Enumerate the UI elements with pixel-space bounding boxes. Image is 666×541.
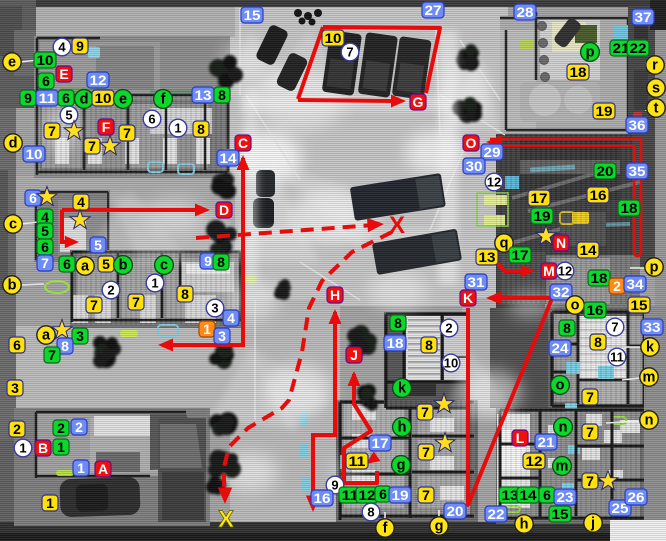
svg-text:9: 9 [204, 253, 212, 269]
svg-text:m: m [556, 459, 569, 475]
svg-text:q: q [500, 236, 509, 252]
svg-text:7: 7 [611, 320, 618, 335]
svg-text:X: X [389, 212, 405, 239]
svg-text:18: 18 [591, 270, 608, 286]
svg-text:O: O [466, 135, 477, 151]
svg-text:s: s [652, 81, 660, 97]
svg-text:2: 2 [107, 283, 114, 298]
svg-text:14: 14 [220, 150, 237, 166]
svg-text:e: e [8, 55, 16, 71]
svg-text:6: 6 [62, 90, 70, 106]
svg-text:h: h [520, 517, 529, 533]
svg-text:6: 6 [543, 487, 551, 503]
svg-text:8: 8 [594, 334, 602, 350]
svg-text:20: 20 [447, 503, 464, 519]
svg-text:14: 14 [520, 487, 537, 503]
svg-text:r: r [652, 58, 658, 74]
svg-text:o: o [571, 298, 580, 314]
svg-text:10: 10 [444, 356, 458, 371]
svg-text:t: t [654, 101, 659, 117]
svg-text:6: 6 [41, 239, 49, 255]
svg-text:17: 17 [372, 435, 389, 451]
svg-text:d: d [9, 136, 18, 152]
svg-text:10: 10 [37, 52, 54, 68]
svg-text:32: 32 [553, 284, 570, 300]
svg-text:33: 33 [644, 319, 661, 335]
svg-text:3: 3 [76, 328, 84, 344]
svg-text:7: 7 [132, 294, 140, 310]
svg-text:17: 17 [512, 247, 529, 263]
svg-text:8: 8 [563, 320, 571, 336]
svg-text:7: 7 [422, 444, 430, 460]
svg-text:15: 15 [631, 297, 648, 313]
svg-text:16: 16 [587, 302, 604, 318]
svg-text:12: 12 [558, 264, 572, 279]
svg-text:12: 12 [526, 453, 543, 469]
svg-text:9: 9 [24, 90, 32, 106]
svg-text:n: n [559, 420, 568, 436]
svg-text:27: 27 [425, 2, 442, 18]
svg-text:p: p [650, 260, 659, 276]
svg-text:1: 1 [57, 439, 65, 455]
svg-text:h: h [398, 420, 407, 436]
svg-text:H: H [330, 287, 340, 303]
svg-text:19: 19 [596, 103, 613, 119]
svg-text:7: 7 [422, 487, 430, 503]
svg-text:23: 23 [557, 489, 574, 505]
svg-text:7: 7 [586, 473, 594, 489]
svg-text:8: 8 [197, 121, 205, 137]
svg-text:2: 2 [613, 278, 621, 294]
svg-text:g: g [435, 519, 444, 535]
svg-text:36: 36 [629, 117, 646, 133]
svg-text:e: e [119, 92, 127, 108]
svg-text:E: E [59, 66, 68, 82]
svg-text:16: 16 [314, 490, 331, 506]
svg-text:19: 19 [392, 487, 409, 503]
svg-text:26: 26 [628, 489, 645, 505]
svg-text:11: 11 [610, 350, 624, 365]
svg-text:7: 7 [90, 297, 98, 313]
svg-text:7: 7 [586, 389, 594, 405]
svg-text:3: 3 [211, 301, 218, 316]
svg-text:3: 3 [218, 328, 226, 344]
svg-text:j: j [590, 516, 595, 532]
svg-text:18: 18 [570, 64, 587, 80]
svg-text:k: k [398, 381, 407, 397]
svg-text:7: 7 [346, 45, 353, 60]
svg-text:12: 12 [359, 487, 376, 503]
svg-text:21: 21 [538, 434, 555, 450]
svg-text:C: C [238, 135, 248, 151]
svg-text:2: 2 [13, 421, 21, 437]
svg-text:8: 8 [218, 87, 226, 103]
svg-text:16: 16 [590, 187, 607, 203]
svg-text:G: G [413, 94, 424, 110]
svg-text:2: 2 [445, 321, 452, 336]
svg-text:12: 12 [90, 72, 107, 88]
svg-text:10: 10 [26, 146, 43, 162]
svg-text:10: 10 [95, 90, 112, 106]
svg-text:a: a [42, 328, 51, 344]
svg-text:24: 24 [552, 340, 569, 356]
svg-text:D: D [219, 202, 229, 218]
svg-text:m: m [643, 370, 656, 386]
svg-text:22: 22 [488, 506, 505, 522]
svg-text:6: 6 [13, 337, 21, 353]
svg-text:B: B [38, 440, 48, 456]
svg-text:c: c [160, 258, 168, 274]
svg-text:20: 20 [597, 163, 614, 179]
svg-text:p: p [586, 45, 595, 61]
svg-text:19: 19 [534, 208, 551, 224]
svg-text:a: a [81, 259, 90, 275]
svg-text:X: X [218, 506, 234, 533]
svg-text:o: o [556, 378, 565, 394]
svg-text:1: 1 [174, 121, 181, 136]
svg-text:13: 13 [195, 87, 212, 103]
svg-text:d: d [80, 92, 89, 108]
svg-text:7: 7 [123, 125, 131, 141]
svg-text:8: 8 [394, 315, 402, 331]
svg-text:2: 2 [57, 420, 65, 436]
svg-text:N: N [556, 235, 566, 251]
svg-text:7: 7 [421, 404, 429, 420]
svg-text:1: 1 [46, 495, 54, 511]
svg-text:5: 5 [65, 108, 72, 123]
svg-text:c: c [9, 217, 17, 233]
svg-text:2: 2 [75, 419, 83, 435]
svg-text:15: 15 [244, 7, 261, 23]
svg-text:15: 15 [552, 506, 569, 522]
svg-text:6: 6 [148, 112, 155, 127]
svg-text:9: 9 [76, 38, 84, 54]
svg-text:4: 4 [77, 194, 85, 210]
svg-text:17: 17 [531, 190, 548, 206]
svg-text:13: 13 [502, 487, 519, 503]
svg-text:F: F [102, 119, 111, 135]
svg-text:29: 29 [484, 144, 501, 160]
svg-text:6: 6 [42, 73, 50, 89]
svg-text:7: 7 [88, 138, 96, 154]
svg-text:b: b [119, 258, 128, 274]
svg-text:K: K [463, 290, 473, 306]
svg-text:f: f [161, 92, 166, 108]
svg-text:k: k [646, 340, 655, 356]
svg-text:11: 11 [39, 90, 56, 106]
svg-text:6: 6 [379, 486, 387, 502]
svg-text:8: 8 [181, 286, 189, 302]
svg-text:8: 8 [61, 338, 69, 354]
svg-text:4: 4 [227, 310, 235, 326]
svg-text:1: 1 [77, 460, 85, 476]
svg-text:3: 3 [11, 380, 19, 396]
svg-text:A: A [98, 461, 108, 477]
svg-text:18: 18 [387, 335, 404, 351]
svg-text:34: 34 [627, 276, 644, 292]
svg-text:6: 6 [29, 190, 37, 206]
svg-text:6: 6 [63, 256, 71, 272]
svg-text:8: 8 [425, 337, 433, 353]
svg-text:8: 8 [367, 505, 374, 520]
svg-text:30: 30 [466, 158, 483, 174]
svg-text:35: 35 [629, 163, 646, 179]
svg-text:31: 31 [468, 274, 485, 290]
svg-text:28: 28 [517, 4, 534, 20]
svg-text:12: 12 [487, 175, 501, 190]
svg-text:22: 22 [630, 40, 647, 56]
svg-text:7: 7 [48, 347, 56, 363]
svg-text:1: 1 [19, 441, 26, 456]
svg-text:5: 5 [94, 237, 102, 253]
svg-text:L: L [516, 430, 525, 446]
svg-text:M: M [543, 263, 555, 279]
svg-text:b: b [8, 278, 17, 294]
svg-text:10: 10 [325, 30, 342, 46]
svg-text:n: n [645, 413, 654, 429]
svg-text:g: g [397, 458, 406, 474]
svg-text:14: 14 [580, 242, 597, 258]
svg-text:1: 1 [203, 321, 211, 337]
svg-text:7: 7 [48, 123, 56, 139]
svg-text:7: 7 [586, 424, 594, 440]
svg-text:1: 1 [151, 276, 158, 291]
svg-text:7: 7 [41, 255, 49, 271]
svg-text:5: 5 [102, 256, 110, 272]
svg-text:8: 8 [217, 254, 225, 270]
svg-text:5: 5 [41, 223, 49, 239]
svg-text:18: 18 [621, 200, 638, 216]
svg-text:J: J [350, 347, 358, 363]
svg-text:4: 4 [58, 40, 66, 55]
svg-text:37: 37 [635, 9, 652, 25]
svg-text:f: f [383, 521, 388, 537]
svg-text:11: 11 [349, 453, 366, 469]
svg-text:13: 13 [479, 249, 496, 265]
